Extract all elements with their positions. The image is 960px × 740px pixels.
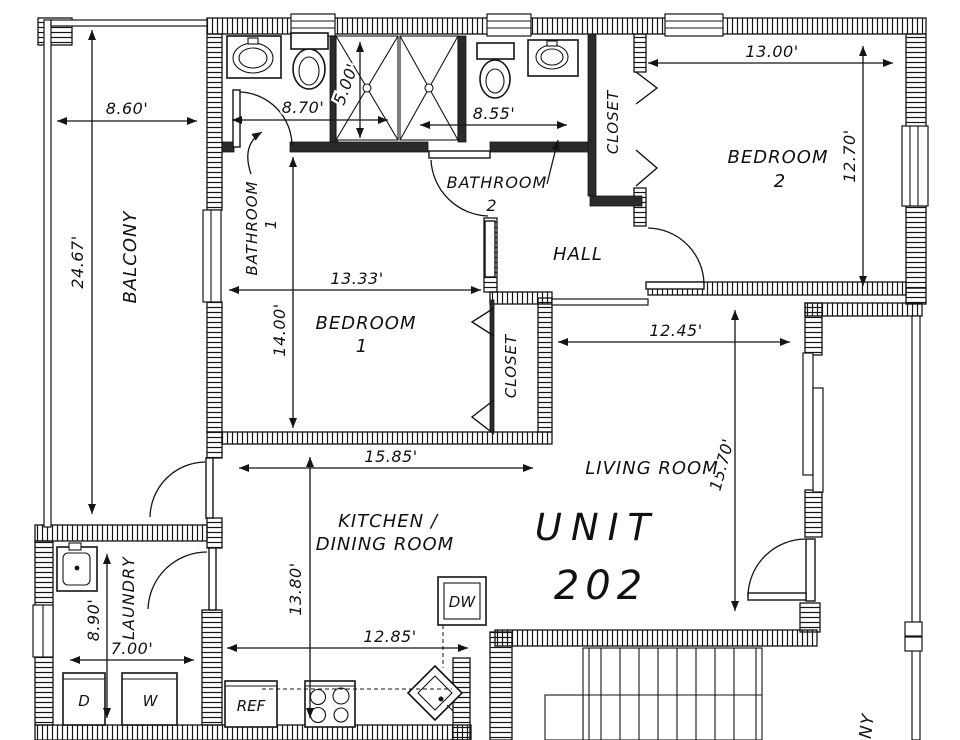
door-kitchen-balcony — [150, 458, 213, 518]
dishwasher: DW — [438, 577, 486, 625]
label-bedroom2-number: 2 — [774, 171, 786, 192]
dryer-label: D — [78, 692, 90, 710]
dim-bedroom2-width: 13.00' — [648, 42, 893, 63]
dim-bedroom2-depth: 12.70' — [840, 46, 863, 286]
label-laundry: LAUNDRY — [119, 556, 138, 640]
washer: W — [122, 673, 177, 725]
rail-balcony-left — [44, 20, 51, 527]
window-living-sliding — [803, 353, 823, 492]
wall-right-corner — [906, 288, 926, 304]
walls — [35, 18, 926, 740]
wall-left-at-kitchen — [207, 432, 222, 458]
wall-balcony-bottom — [35, 525, 207, 541]
label-kitchen-line2: DINING ROOM — [316, 534, 454, 555]
svg-text:13.33': 13.33' — [330, 269, 383, 288]
vanity-sink-bathroom2 — [528, 40, 578, 76]
dim-kitchen-width: 15.85' — [239, 447, 533, 468]
label-unit-number: 202 — [554, 563, 648, 609]
window-laundry — [33, 605, 53, 657]
stove — [305, 681, 355, 727]
dim-bedroom1-width: 13.33' — [229, 269, 481, 290]
svg-text:8.55': 8.55' — [473, 104, 516, 123]
dim-bedroom1-depth: 14.00' — [270, 157, 293, 428]
wall-left-upper — [207, 34, 222, 210]
label-bedroom1-number: 1 — [356, 336, 368, 357]
window-bedroom1-balcony — [203, 210, 221, 302]
svg-text:8.90': 8.90' — [84, 599, 103, 642]
label-bedroom1: BEDROOM — [316, 313, 417, 334]
dryer: D — [63, 673, 105, 725]
svg-text:13.80': 13.80' — [286, 562, 305, 615]
vanity-sink-bathroom1 — [227, 36, 281, 78]
wall-bath-row-bottom-a — [290, 142, 428, 152]
rail-post-a — [905, 622, 922, 636]
svg-text:15.85': 15.85' — [364, 447, 417, 466]
wall-entry-block — [800, 603, 820, 632]
wall-closet2-stub-bottom — [634, 188, 646, 226]
svg-text:8.70': 8.70' — [282, 98, 325, 117]
laundry-sink — [57, 543, 97, 591]
label-bathroom2: BATHROOM — [447, 173, 548, 192]
label-kitchen-line1: KITCHEN / — [338, 511, 439, 532]
wall-bath1-sill-left — [222, 142, 234, 152]
toilet-bathroom1 — [291, 33, 328, 89]
dim-kitchen-lower-width: 12.85' — [227, 627, 468, 648]
wall-bath-row-bottom-b — [490, 142, 594, 152]
svg-text:8.60': 8.60' — [106, 99, 149, 118]
label-bathroom1-number: 1 — [262, 219, 280, 230]
label-hall: HALL — [553, 244, 603, 265]
wall-closet1-living — [538, 298, 552, 432]
floor-plan-drawing: D W REF DW — [0, 0, 960, 740]
label-balcony-right: BALCONY — [847, 712, 879, 740]
label-closet-bedroom2: CLOSET — [604, 89, 622, 154]
opening-hall-living — [552, 299, 648, 305]
wall-stairs-top — [495, 630, 817, 646]
svg-text:24.67': 24.67' — [68, 235, 87, 288]
door-bedroom1-closed — [485, 221, 495, 277]
label-bathroom2-number: 2 — [486, 196, 497, 215]
rail-post-b — [905, 637, 922, 651]
svg-text:12.85': 12.85' — [363, 627, 416, 646]
refrigerator-label: REF — [237, 697, 266, 715]
dim-balcony-length: 24.67' — [68, 30, 92, 514]
svg-text:13.00': 13.00' — [745, 42, 798, 61]
wall-shower-bath2 — [458, 36, 466, 142]
leader-bathroom1 — [248, 132, 262, 174]
door-bedroom2 — [646, 228, 704, 289]
bifold-closet-bedroom2 — [636, 72, 657, 186]
wall-living-right-b — [805, 490, 822, 537]
wall-bath2-closet — [588, 34, 596, 196]
dim-living-width: 12.45' — [558, 321, 790, 342]
label-bedroom2: BEDROOM — [728, 147, 829, 168]
label-balcony-left: BALCONY — [120, 210, 141, 304]
stairs — [545, 648, 762, 740]
toilet-bathroom2 — [477, 43, 514, 98]
label-living-room: LIVING ROOM — [585, 458, 718, 479]
door-laundry — [148, 548, 216, 610]
wall-laundry-kitchen — [202, 610, 222, 725]
svg-text:7.00': 7.00' — [111, 639, 154, 658]
wall-living-right-a — [805, 303, 822, 355]
dishwasher-label: DW — [449, 593, 477, 611]
wall-left-mid — [207, 302, 222, 432]
refrigerator: REF — [225, 681, 277, 727]
label-bathroom1: BATHROOM — [243, 181, 261, 276]
wall-closet2-bottom — [590, 196, 642, 206]
label-closet-bedroom1: CLOSET — [502, 333, 520, 398]
wall-closet1-back — [490, 300, 494, 432]
rail-balcony-right — [912, 316, 920, 740]
window-top-2 — [487, 14, 531, 36]
washer-label: W — [143, 692, 159, 710]
svg-text:12.70': 12.70' — [840, 129, 859, 182]
label-unit: UNIT — [535, 506, 659, 549]
dim-kitchen-depth: 13.80' — [286, 457, 310, 718]
wall-closet2-stub-top — [634, 34, 646, 72]
door-entry — [748, 539, 815, 601]
dim-balcony-width: 8.60' — [57, 99, 197, 121]
svg-text:14.00': 14.00' — [270, 303, 289, 356]
rail-balcony-top — [51, 20, 207, 26]
svg-text:12.45': 12.45' — [649, 321, 702, 340]
window-bedroom2-right — [902, 126, 928, 206]
wall-bedroom1-bottom — [222, 432, 552, 444]
window-top-3 — [665, 14, 723, 36]
floor-plan: D W REF DW — [0, 0, 960, 740]
wall-left-balcony-end — [207, 518, 222, 548]
wall-stair-left — [490, 632, 512, 740]
